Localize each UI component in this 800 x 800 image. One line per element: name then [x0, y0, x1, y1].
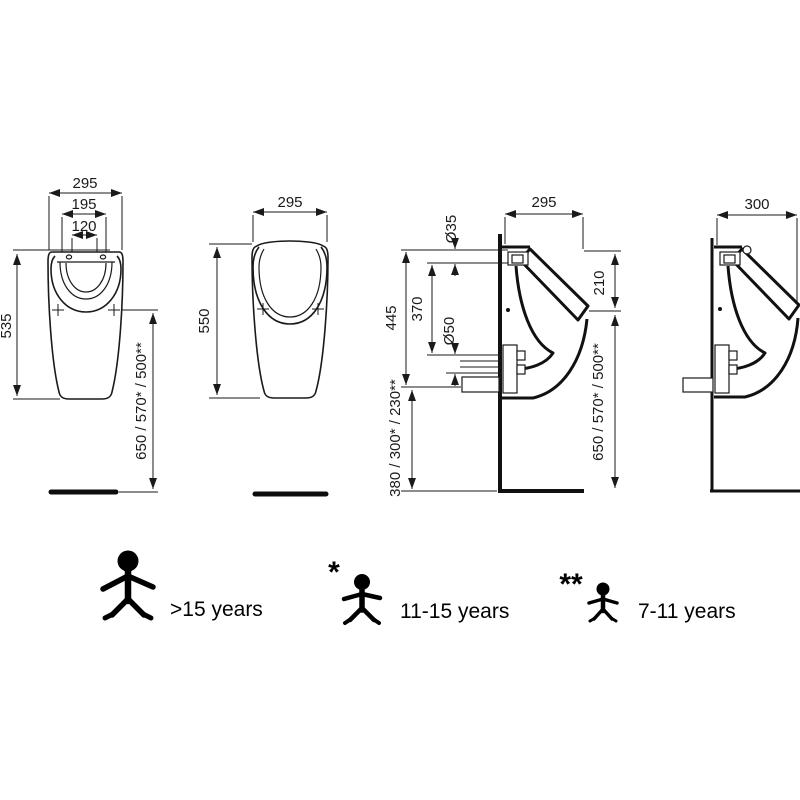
single-asterisk-marker: * — [328, 556, 340, 589]
outlet-fitting — [503, 345, 517, 393]
outlet-bolt — [729, 365, 737, 374]
mounting-hole — [100, 255, 105, 259]
outlet-fitting — [715, 345, 729, 393]
dim-outlet-to-floor-label: 380 / 300* / 230** — [387, 379, 404, 497]
dim-hole-spacing-label: 120 — [71, 218, 96, 235]
mounting-hole — [66, 255, 71, 259]
spigot-connector-detail — [743, 246, 751, 254]
dim-overall-width-label: 295 — [277, 194, 302, 211]
dim-outlet-diameter-label: Ø50 — [441, 317, 458, 345]
legend-label-child: 7-11 years — [638, 600, 736, 623]
outlet-bolt — [517, 365, 525, 374]
detail-dot — [718, 307, 722, 311]
dim-overall-width-label: 295 — [72, 175, 97, 192]
dim-spout-drop-label: 210 — [591, 270, 608, 295]
urinal-body-outline — [252, 241, 328, 398]
double-asterisk-marker: ** — [559, 568, 583, 601]
urinal-body-outline — [48, 252, 123, 399]
dim-inlet-diameter-label: Ø35 — [443, 215, 460, 243]
outlet-bolt — [517, 351, 525, 360]
inlet-spigot-inner — [724, 255, 735, 263]
legend-label-teen: 11-15 years — [400, 600, 509, 623]
dim-rim-width-label: 195 — [71, 196, 96, 213]
dim-spout-to-floor-label: 650 / 570* / 500** — [590, 343, 607, 461]
outlet-bolt — [729, 351, 737, 360]
urinal-technical-drawing: 295 195 120 535 650 / 570* / 500** — [0, 0, 800, 800]
dim-height-label: 550 — [196, 308, 213, 333]
detail-dot — [506, 308, 510, 312]
outlet-pipe — [462, 377, 499, 392]
dim-rim-height-label: 445 — [383, 305, 400, 330]
inlet-spigot-inner — [512, 255, 523, 263]
outlet-pipe — [683, 378, 713, 392]
dim-height-label: 535 — [0, 313, 15, 338]
dim-overall-width-label: 300 — [744, 196, 769, 213]
dim-rim-to-floor-label: 650 / 570* / 500** — [133, 342, 150, 460]
dim-inlet-to-outlet-label: 370 — [409, 296, 426, 321]
dim-overall-width-label: 295 — [531, 194, 556, 211]
legend-label-adult: >15 years — [170, 598, 263, 621]
